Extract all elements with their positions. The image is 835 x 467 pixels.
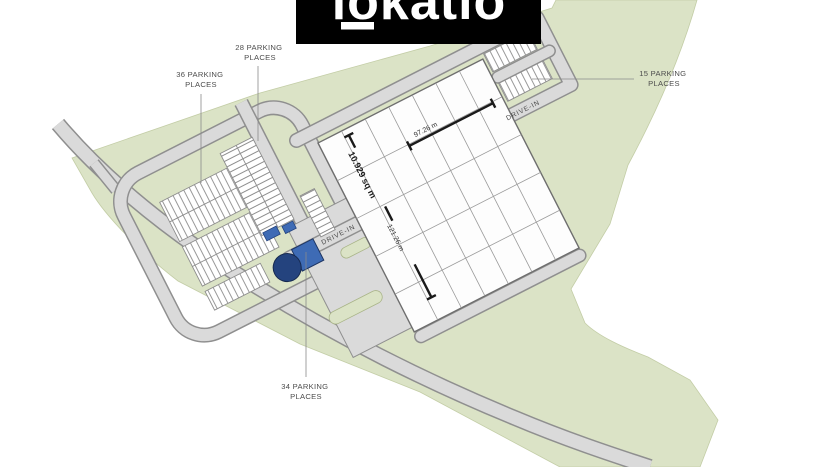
label-parking-34: 34 PARKING PLACES: [281, 382, 331, 401]
site-plan-canvas: 10.929 sq m 121.26 m 97.26 m DRIVE-IN DR…: [0, 0, 835, 467]
site-plan-page: 10.929 sq m 121.26 m 97.26 m DRIVE-IN DR…: [0, 0, 835, 467]
label-parking-28: 28 PARKING PLACES: [235, 43, 285, 62]
logo-underline: [341, 22, 374, 30]
logo: lokatio: [296, 0, 541, 44]
label-parking-36: 36 PARKING PLACES: [176, 70, 226, 89]
